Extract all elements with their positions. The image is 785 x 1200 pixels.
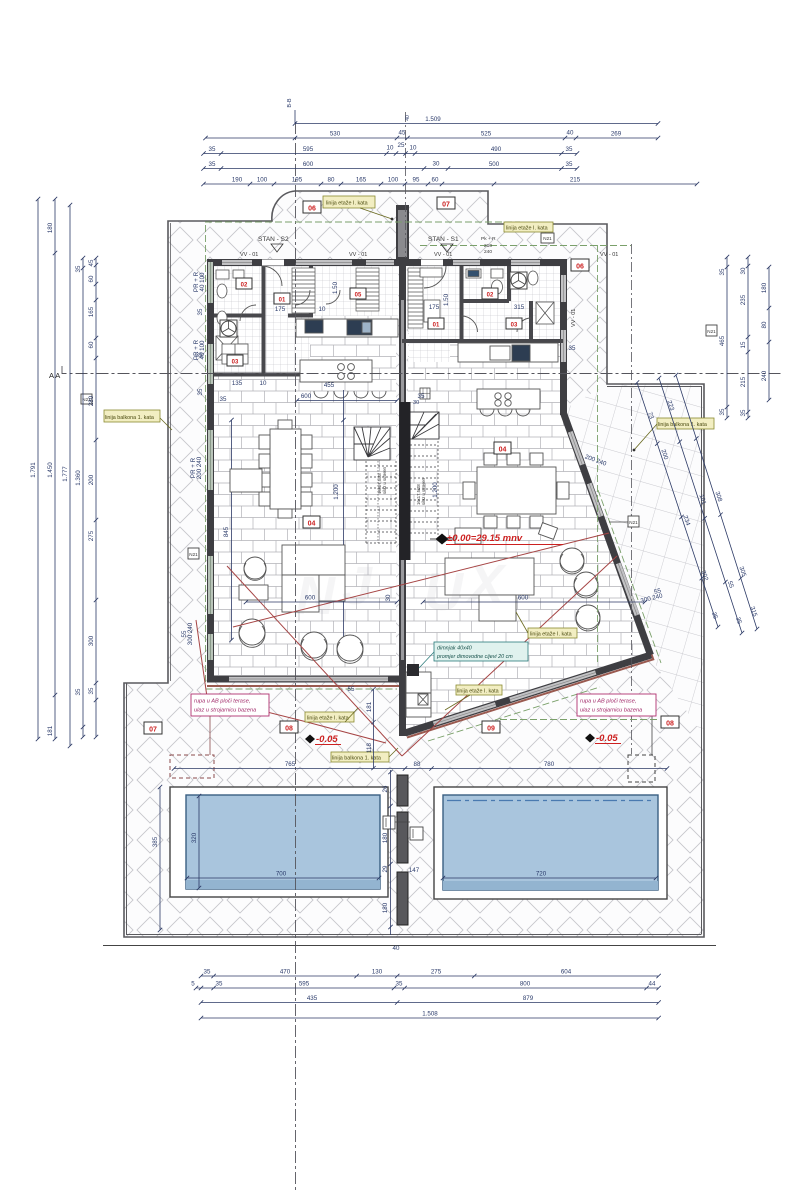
svg-text:700: 700 xyxy=(276,871,287,878)
svg-text:60: 60 xyxy=(88,275,95,282)
svg-text:300 240: 300 240 xyxy=(187,622,194,645)
svg-text:130: 130 xyxy=(372,969,383,976)
svg-text:10: 10 xyxy=(410,145,417,152)
svg-text:04: 04 xyxy=(308,521,316,528)
svg-text:275: 275 xyxy=(431,969,442,976)
svg-text:1.200: 1.200 xyxy=(432,482,439,498)
svg-text:07: 07 xyxy=(149,727,157,734)
svg-text:455: 455 xyxy=(324,382,335,389)
svg-text:315: 315 xyxy=(514,304,525,311)
svg-text:604: 604 xyxy=(561,969,572,976)
svg-text:780: 780 xyxy=(544,761,555,768)
svg-text:30: 30 xyxy=(413,400,419,406)
svg-text:600: 600 xyxy=(518,595,529,602)
svg-text:1.508: 1.508 xyxy=(422,1011,438,1018)
svg-text:40 100: 40 100 xyxy=(199,340,206,359)
svg-text:45: 45 xyxy=(88,259,95,266)
svg-text:15: 15 xyxy=(740,341,747,348)
svg-text:rupa u AB ploči terase,: rupa u AB ploči terase, xyxy=(580,699,636,705)
svg-text:linija balkona 1. kata: linija balkona 1. kata xyxy=(658,422,707,428)
svg-text:300: 300 xyxy=(88,635,95,646)
svg-text:465: 465 xyxy=(719,335,726,346)
svg-text:210: 210 xyxy=(484,243,492,249)
svg-text:30: 30 xyxy=(385,594,392,601)
svg-text:10: 10 xyxy=(260,380,267,387)
svg-text:N21: N21 xyxy=(629,520,638,525)
svg-text:530: 530 xyxy=(330,131,341,138)
svg-text:600: 600 xyxy=(305,595,316,602)
svg-text:03: 03 xyxy=(511,323,518,329)
svg-text:linija balkona 1. kata: linija balkona 1. kata xyxy=(105,415,154,421)
svg-text:135: 135 xyxy=(232,380,243,387)
svg-text:±0.00=29.15 mnv: ±0.00=29.15 mnv xyxy=(447,533,523,544)
svg-text:215: 215 xyxy=(570,177,581,184)
svg-text:35: 35 xyxy=(418,393,425,400)
svg-text:35: 35 xyxy=(569,345,576,352)
svg-text:845: 845 xyxy=(223,526,230,537)
svg-text:VV - 01: VV - 01 xyxy=(349,252,367,258)
svg-text:35: 35 xyxy=(740,409,747,416)
svg-text:35: 35 xyxy=(566,146,573,153)
svg-text:60: 60 xyxy=(88,341,95,348)
svg-text:180: 180 xyxy=(382,832,389,843)
svg-text:A A: A A xyxy=(49,371,60,380)
svg-text:02: 02 xyxy=(241,283,248,289)
svg-text:08: 08 xyxy=(666,721,674,728)
svg-text:44: 44 xyxy=(649,981,656,988)
svg-text:09: 09 xyxy=(487,726,495,733)
svg-text:1.509: 1.509 xyxy=(425,116,441,123)
svg-text:5: 5 xyxy=(191,981,195,988)
svg-text:VV - 01: VV - 01 xyxy=(571,309,577,327)
svg-text:275: 275 xyxy=(88,530,95,541)
svg-text:VV - 01: VV - 01 xyxy=(240,252,258,258)
svg-text:280: 280 xyxy=(88,395,95,406)
svg-text:35: 35 xyxy=(197,388,204,395)
svg-text:1.777: 1.777 xyxy=(62,466,69,482)
svg-text:03: 03 xyxy=(232,360,239,366)
svg-text:595: 595 xyxy=(303,146,314,153)
svg-text:55: 55 xyxy=(181,630,188,637)
svg-text:N21: N21 xyxy=(707,329,716,334)
svg-text:35: 35 xyxy=(204,969,211,976)
svg-text:01: 01 xyxy=(433,323,440,329)
svg-text:06: 06 xyxy=(576,264,584,271)
svg-text:ulaz u strojarnicu bazena: ulaz u strojarnicu bazena xyxy=(580,708,642,714)
svg-text:35: 35 xyxy=(396,981,403,988)
svg-text:200: 200 xyxy=(88,474,95,485)
svg-text:STAN - S2: STAN - S2 xyxy=(258,236,289,243)
svg-text:1.50: 1.50 xyxy=(443,293,450,306)
svg-text:35: 35 xyxy=(209,161,216,168)
svg-text:X: X xyxy=(465,554,507,614)
svg-text:30: 30 xyxy=(740,267,747,274)
svg-text:595: 595 xyxy=(299,981,310,988)
svg-text:60: 60 xyxy=(432,177,439,184)
svg-text:1.360: 1.360 xyxy=(75,470,82,486)
svg-text:-0.05: -0.05 xyxy=(316,734,338,745)
svg-text:240: 240 xyxy=(484,249,492,255)
svg-text:165: 165 xyxy=(356,177,367,184)
svg-text:45: 45 xyxy=(399,130,406,137)
svg-text:500: 500 xyxy=(489,161,500,168)
svg-text:879: 879 xyxy=(523,995,534,1002)
svg-text:190: 190 xyxy=(232,177,243,184)
svg-text:1.50: 1.50 xyxy=(332,281,339,294)
svg-text:235: 235 xyxy=(740,294,747,305)
svg-text:269: 269 xyxy=(611,131,622,138)
svg-text:100: 100 xyxy=(257,177,268,184)
svg-text:ulaz u strojarnicu bazena: ulaz u strojarnicu bazena xyxy=(194,708,256,714)
svg-text:80: 80 xyxy=(761,321,768,328)
svg-text:35: 35 xyxy=(719,268,726,275)
svg-text:100: 100 xyxy=(388,177,399,184)
svg-text:B-B: B-B xyxy=(287,98,293,108)
svg-text:215: 215 xyxy=(740,376,747,387)
svg-text:1.200: 1.200 xyxy=(333,484,340,500)
svg-text:118: 118 xyxy=(366,743,373,753)
svg-text:40: 40 xyxy=(393,945,400,952)
svg-text:55: 55 xyxy=(348,686,355,693)
svg-text:88: 88 xyxy=(414,761,421,768)
svg-text:175: 175 xyxy=(429,304,440,311)
svg-text:linija etaže I. kata: linija etaže I. kata xyxy=(506,226,548,232)
svg-text:180: 180 xyxy=(382,902,389,913)
svg-text:25: 25 xyxy=(398,142,405,149)
svg-text:10: 10 xyxy=(319,306,326,313)
svg-text:26: 26 xyxy=(382,785,389,792)
svg-text:N: N xyxy=(296,566,336,626)
svg-text:30: 30 xyxy=(433,161,440,168)
svg-text:180: 180 xyxy=(47,222,54,233)
svg-text:435: 435 xyxy=(307,995,318,1002)
svg-text:40 100: 40 100 xyxy=(199,272,206,291)
svg-text:29: 29 xyxy=(382,865,389,872)
svg-text:35: 35 xyxy=(216,981,223,988)
svg-text:04: 04 xyxy=(499,447,507,454)
svg-text:35: 35 xyxy=(88,687,95,694)
svg-text:147: 147 xyxy=(409,867,420,874)
svg-text:VV - 01: VV - 01 xyxy=(434,252,452,258)
svg-text:470: 470 xyxy=(280,969,291,976)
svg-text:40: 40 xyxy=(567,130,574,137)
svg-text:35: 35 xyxy=(75,265,82,272)
svg-text:35: 35 xyxy=(75,688,82,695)
svg-text:01: 01 xyxy=(279,298,286,304)
svg-text:STAN - S1: STAN - S1 xyxy=(428,236,459,243)
svg-text:07: 07 xyxy=(442,202,450,209)
svg-text:-0.05: -0.05 xyxy=(596,733,618,744)
svg-text:J: J xyxy=(342,556,373,616)
svg-text:180: 180 xyxy=(761,282,768,293)
svg-text:40: 40 xyxy=(405,115,411,121)
svg-text:35: 35 xyxy=(566,161,573,168)
svg-text:35: 35 xyxy=(220,396,227,403)
svg-text:195: 195 xyxy=(292,177,303,184)
svg-text:02: 02 xyxy=(487,293,494,299)
svg-text:promjer dimovodne cijevi 20 cm: promjer dimovodne cijevi 20 cm xyxy=(436,654,513,660)
svg-text:525: 525 xyxy=(481,131,492,138)
svg-text:35: 35 xyxy=(719,408,726,415)
svg-text:385: 385 xyxy=(152,836,159,847)
svg-text:95: 95 xyxy=(413,177,420,184)
svg-text:rupa u AB ploči terase,: rupa u AB ploči terase, xyxy=(194,699,250,705)
svg-text:181: 181 xyxy=(47,725,54,736)
svg-text:200 240: 200 240 xyxy=(196,456,203,479)
svg-text:05: 05 xyxy=(355,293,362,299)
svg-text:silaz u suteren: silaz u suteren xyxy=(421,477,426,505)
svg-text:600: 600 xyxy=(303,161,314,168)
svg-text:N21: N21 xyxy=(189,552,198,557)
svg-text:165: 165 xyxy=(88,306,95,317)
svg-text:35: 35 xyxy=(197,308,204,315)
svg-text:175: 175 xyxy=(275,306,286,313)
svg-text:VV - 01: VV - 01 xyxy=(600,252,618,258)
svg-text:08: 08 xyxy=(285,726,293,733)
svg-text:06: 06 xyxy=(308,206,316,213)
svg-text:240: 240 xyxy=(761,370,768,381)
svg-text:1.450: 1.450 xyxy=(47,462,54,478)
svg-text:linija etaže I. kata: linija etaže I. kata xyxy=(457,689,499,695)
svg-text:10: 10 xyxy=(387,145,394,152)
svg-text:linija etaže I. kata: linija etaže I. kata xyxy=(307,716,349,722)
svg-text:181: 181 xyxy=(366,701,373,712)
svg-text:80: 80 xyxy=(328,177,335,184)
svg-text:dimnjak 40x40: dimnjak 40x40 xyxy=(437,646,472,652)
svg-text:silaz u suteren: silaz u suteren xyxy=(382,466,387,494)
svg-text:linija etaže I. kata: linija etaže I. kata xyxy=(530,632,572,638)
svg-text:1.791: 1.791 xyxy=(30,462,37,478)
svg-text:320: 320 xyxy=(191,832,198,843)
svg-text:Pk + R: Pk + R xyxy=(481,236,496,242)
svg-text:490: 490 xyxy=(491,146,502,153)
svg-text:N21: N21 xyxy=(543,236,552,241)
svg-text:35: 35 xyxy=(209,146,216,153)
svg-text:800: 800 xyxy=(520,981,531,988)
svg-text:720: 720 xyxy=(536,871,547,878)
svg-text:765: 765 xyxy=(285,761,296,768)
svg-text:600: 600 xyxy=(301,393,312,400)
svg-text:linija etaže I. kata: linija etaže I. kata xyxy=(326,201,368,207)
